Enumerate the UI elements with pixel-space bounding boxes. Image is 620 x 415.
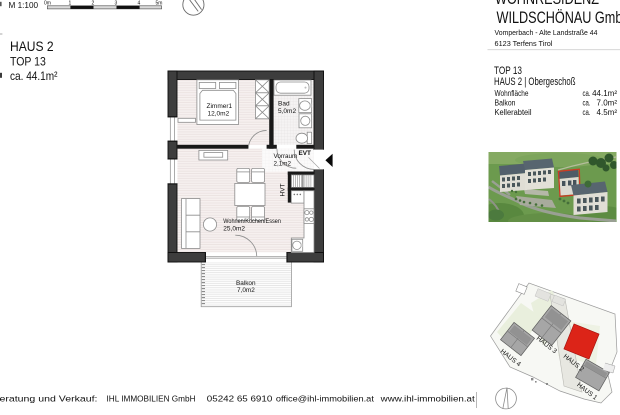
svg-text:WOHNRESIDENZ: WOHNRESIDENZ (495, 0, 599, 8)
svg-text:M 1:100: M 1:100 (9, 1, 39, 10)
svg-text:Vorraum: Vorraum (274, 153, 298, 160)
svg-text:2: 2 (92, 1, 95, 7)
svg-text:ca. 44.1m²: ca. 44.1m² (10, 69, 58, 83)
svg-text:1: 1 (69, 1, 72, 7)
svg-text:TOP 13: TOP 13 (494, 65, 522, 77)
svg-text:HAUS 2: HAUS 2 (10, 39, 54, 54)
svg-text:HVT: HVT (280, 183, 287, 196)
svg-text:Zimmer1: Zimmer1 (207, 103, 233, 110)
svg-text:12,0m2: 12,0m2 (208, 111, 230, 118)
svg-text:25,0m2: 25,0m2 (223, 226, 245, 233)
svg-text:eratung und Verkauf:: eratung und Verkauf: (0, 394, 98, 404)
svg-text:0m: 0m (44, 1, 51, 7)
svg-text:Balkon: Balkon (236, 280, 256, 287)
svg-text:7.0m²: 7.0m² (597, 99, 618, 108)
svg-text:7,0m2: 7,0m2 (237, 287, 255, 294)
svg-text:4: 4 (138, 1, 141, 7)
svg-text:4.5m²: 4.5m² (597, 108, 618, 117)
svg-text:TOP 13: TOP 13 (10, 55, 46, 69)
svg-text:www.ihl-immobilien.at: www.ihl-immobilien.at (380, 394, 476, 404)
svg-text:2,1m2: 2,1m2 (274, 161, 292, 168)
svg-text:6123 Terfens Tirol: 6123 Terfens Tirol (495, 39, 553, 48)
svg-text:WILDSCHÖNAU GmbH: WILDSCHÖNAU GmbH (497, 8, 620, 27)
svg-text:ca.: ca. (583, 89, 591, 98)
svg-text:office@ihl-immobilien.at: office@ihl-immobilien.at (276, 394, 375, 404)
svg-text:Wohnfläche: Wohnfläche (495, 89, 529, 98)
svg-text:Wohnen/Kochen/Essen: Wohnen/Kochen/Essen (223, 218, 281, 225)
svg-text:ca.: ca. (583, 108, 591, 117)
svg-text:HAUS 2 | Obergeschoß: HAUS 2 | Obergeschoß (494, 76, 576, 88)
svg-text:5m: 5m (156, 1, 163, 7)
svg-text:Bad: Bad (278, 101, 290, 108)
svg-text:ca.: ca. (583, 99, 591, 108)
svg-text:IHL IMMOBILIEN GmbH: IHL IMMOBILIEN GmbH (107, 394, 196, 404)
svg-text:44.1m²: 44.1m² (592, 89, 617, 98)
svg-text:Balkon: Balkon (495, 99, 516, 108)
svg-text:5,0m2: 5,0m2 (278, 108, 296, 115)
svg-text:Kellerabteil: Kellerabteil (495, 108, 532, 117)
svg-text:05242 65 6910: 05242 65 6910 (207, 394, 273, 404)
svg-text:EVT: EVT (299, 150, 312, 157)
svg-text:Vomperbach - Alte Landstraße 4: Vomperbach - Alte Landstraße 44 (495, 28, 598, 37)
svg-text:3: 3 (115, 1, 118, 7)
